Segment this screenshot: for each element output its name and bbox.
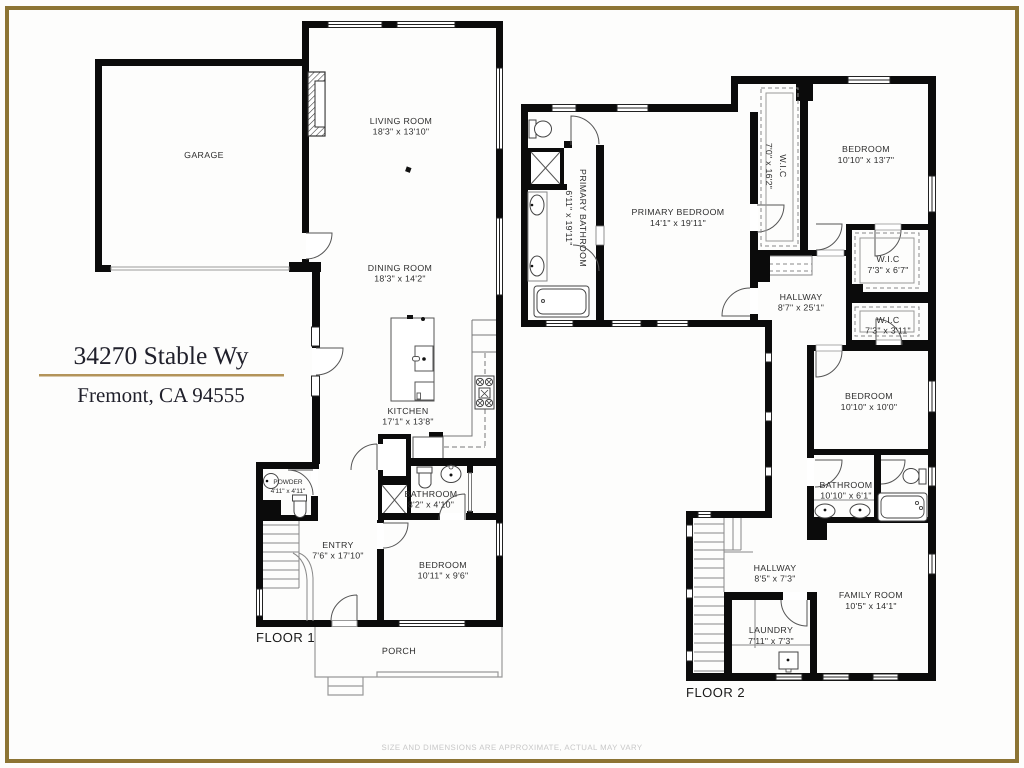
svg-text:FLOOR 1: FLOOR 1 [256,630,315,645]
svg-text:7'0" x 16'2": 7'0" x 16'2" [764,143,774,189]
svg-text:LAUNDRY: LAUNDRY [749,625,793,635]
svg-text:8'5" x 7'3": 8'5" x 7'3" [754,574,795,584]
svg-text:PORCH: PORCH [382,646,416,656]
svg-text:KITCHEN: KITCHEN [387,406,428,416]
svg-text:10'10" x 6'1": 10'10" x 6'1" [820,491,872,501]
svg-text:BEDROOM: BEDROOM [419,560,467,570]
svg-text:FAMILY ROOM: FAMILY ROOM [839,590,903,600]
svg-text:14'1" x 19'11": 14'1" x 19'11" [650,218,706,228]
svg-text:Fremont, CA 94555: Fremont, CA 94555 [77,383,244,407]
svg-text:BATHROOM: BATHROOM [405,489,458,499]
svg-text:BATHROOM: BATHROOM [820,480,873,490]
svg-text:18'3" x 14'2": 18'3" x 14'2" [374,274,426,284]
svg-text:ENTRY: ENTRY [322,540,353,550]
svg-text:DINING ROOM: DINING ROOM [368,263,432,273]
svg-text:8'7" x 25'1": 8'7" x 25'1" [778,303,824,313]
svg-text:HALLWAY: HALLWAY [754,563,797,573]
svg-text:6'11" x 19'11": 6'11" x 19'11" [564,190,574,245]
svg-text:GARAGE: GARAGE [184,150,224,160]
svg-text:18'3" x 13'10": 18'3" x 13'10" [373,127,430,137]
svg-text:BEDROOM: BEDROOM [842,144,890,154]
svg-text:7'3" x 6'7": 7'3" x 6'7" [867,265,908,275]
svg-text:4'11" x 4'11": 4'11" x 4'11" [271,488,306,495]
svg-text:8'2" x 4'10": 8'2" x 4'10" [408,500,454,510]
svg-text:W.I.C: W.I.C [778,154,788,178]
svg-text:BEDROOM: BEDROOM [845,391,893,401]
svg-text:W.I.C: W.I.C [876,315,900,325]
svg-text:10'10" x 10'0": 10'10" x 10'0" [841,402,898,412]
svg-text:34270 Stable Wy: 34270 Stable Wy [73,341,248,370]
svg-text:LIVING ROOM: LIVING ROOM [370,116,433,126]
svg-text:PRIMARY BATHROOM: PRIMARY BATHROOM [578,169,588,267]
svg-text:10'5" x 14'1": 10'5" x 14'1" [845,601,897,611]
svg-text:W.I.C: W.I.C [876,254,900,264]
svg-text:7'11" x 7'3": 7'11" x 7'3" [748,636,794,646]
svg-text:POWDER: POWDER [273,479,303,486]
svg-text:17'1" x 13'8": 17'1" x 13'8" [382,417,434,427]
svg-text:PRIMARY BEDROOM: PRIMARY BEDROOM [632,207,725,217]
svg-text:7'3" x 3'11": 7'3" x 3'11" [865,326,911,336]
svg-text:FLOOR 2: FLOOR 2 [686,685,745,700]
svg-text:7'6" x 17'10": 7'6" x 17'10" [312,551,364,561]
svg-text:SIZE AND DIMENSIONS ARE APPROX: SIZE AND DIMENSIONS ARE APPROXIMATE, ACT… [381,743,642,752]
svg-text:10'10" x 13'7": 10'10" x 13'7" [838,155,895,165]
svg-text:10'11" x 9'6": 10'11" x 9'6" [418,571,469,581]
svg-text:HALLWAY: HALLWAY [780,292,823,302]
